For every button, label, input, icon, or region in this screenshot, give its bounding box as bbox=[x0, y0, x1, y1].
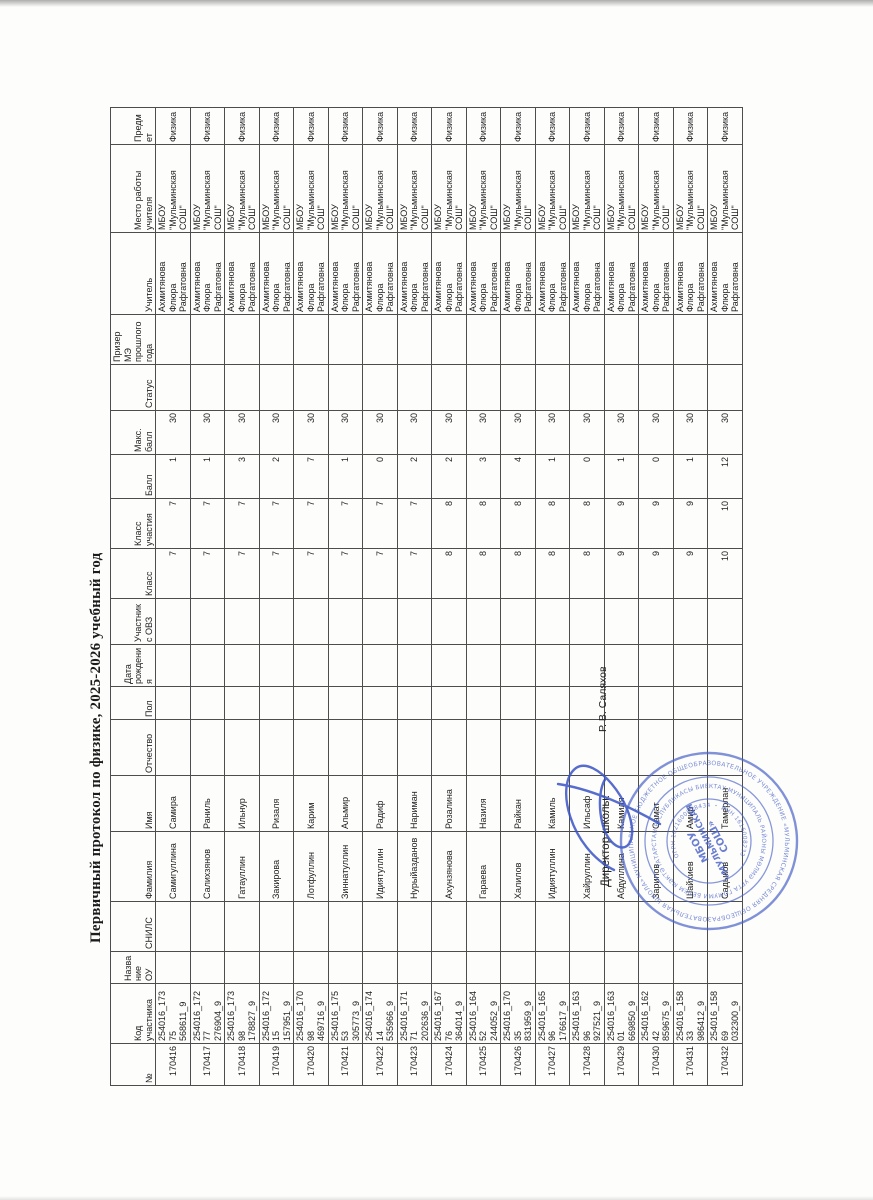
cell-birthdate bbox=[156, 645, 191, 687]
cell-teacher: Ахмитянова Флюра Рафгатовна bbox=[397, 233, 432, 315]
cell-participation-grade: 8 bbox=[432, 499, 467, 549]
cell-status bbox=[363, 365, 398, 411]
cell-teacher: Ахмитянова Флюра Рафгатовна bbox=[708, 233, 743, 315]
cell-patronymic bbox=[363, 720, 398, 776]
cell-teacher: Ахмитянова Флюра Рафгатовна bbox=[259, 233, 294, 315]
cell-teacher: Ахмитянова Флюра Рафгатовна bbox=[639, 233, 674, 315]
cell-grade: 7 bbox=[190, 549, 225, 599]
cell-school-name bbox=[363, 952, 398, 984]
cell-sex bbox=[294, 687, 329, 720]
cell-birthdate bbox=[363, 645, 398, 687]
cell-teacher: Ахмитянова Флюра Рафгатовна bbox=[225, 233, 260, 315]
cell-max-score: 30 bbox=[570, 411, 605, 455]
cell-prize-winner bbox=[673, 315, 708, 365]
cell-school-name bbox=[466, 952, 501, 984]
cell-grade: 9 bbox=[673, 549, 708, 599]
cell-sex bbox=[397, 687, 432, 720]
cell-snils bbox=[501, 902, 536, 952]
cell-birthdate bbox=[639, 645, 674, 687]
cell-sex bbox=[225, 687, 260, 720]
cell-teacher-workplace: МБОУ "Мульминская СОШ" bbox=[501, 145, 536, 233]
cell-teacher-workplace: МБОУ "Мульминская СОШ" bbox=[708, 145, 743, 233]
cell-surname: Самигуллина bbox=[156, 832, 191, 902]
cell-ovz bbox=[673, 599, 708, 645]
cell-max-score: 30 bbox=[328, 411, 363, 455]
cell-prize-winner bbox=[466, 315, 501, 365]
cell-grade: 8 bbox=[501, 549, 536, 599]
header-score: Балл bbox=[111, 455, 156, 499]
cell-birthdate bbox=[708, 645, 743, 687]
header-teacher: Учитель bbox=[111, 233, 156, 315]
cell-snils bbox=[190, 902, 225, 952]
cell-snils bbox=[432, 902, 467, 952]
cell-ovz bbox=[397, 599, 432, 645]
cell-patronymic bbox=[190, 720, 225, 776]
cell-num: 170423 bbox=[397, 1044, 432, 1086]
cell-participation-grade: 8 bbox=[535, 499, 570, 549]
cell-status bbox=[328, 365, 363, 411]
cell-score: 1 bbox=[328, 455, 363, 499]
header-grade: Класс bbox=[111, 549, 156, 599]
cell-status bbox=[535, 365, 570, 411]
cell-max-score: 30 bbox=[535, 411, 570, 455]
cell-max-score: 30 bbox=[259, 411, 294, 455]
cell-school-name bbox=[708, 952, 743, 984]
cell-score: 2 bbox=[259, 455, 294, 499]
cell-status bbox=[225, 365, 260, 411]
cell-score: 4 bbox=[501, 455, 536, 499]
cell-max-score: 30 bbox=[673, 411, 708, 455]
cell-name: Ильнур bbox=[225, 776, 260, 832]
cell-name: Радиф bbox=[363, 776, 398, 832]
cell-max-score: 30 bbox=[363, 411, 398, 455]
header-snils: СНИЛС bbox=[111, 902, 156, 952]
cell-subject: Физика bbox=[294, 108, 329, 145]
table-header-row: №Код участникаНазвание ОУСНИЛСФамилияИмя… bbox=[111, 108, 156, 1086]
table-row: 170426254016_17035 831959_9ХалиловРайкан… bbox=[501, 108, 536, 1086]
cell-subject: Физика bbox=[570, 108, 605, 145]
cell-status bbox=[604, 365, 639, 411]
header-status: Статус bbox=[111, 365, 156, 411]
cell-grade: 10 bbox=[708, 549, 743, 599]
cell-teacher-workplace: МБОУ "Мульминская СОШ" bbox=[432, 145, 467, 233]
cell-participation-grade: 7 bbox=[328, 499, 363, 549]
cell-prize-winner bbox=[259, 315, 294, 365]
cell-teacher-workplace: МБОУ "Мульминская СОШ" bbox=[328, 145, 363, 233]
cell-score: 2 bbox=[397, 455, 432, 499]
cell-subject: Физика bbox=[328, 108, 363, 145]
table-row: 170428254016_16396 927521_9ХайруллинИльс… bbox=[570, 108, 605, 1086]
table-row: 170425254016_16452 244052_9ГараеваНазиля… bbox=[466, 108, 501, 1086]
cell-ovz bbox=[466, 599, 501, 645]
cell-score: 0 bbox=[639, 455, 674, 499]
table-row: 170423254016_17171 202636_9НурыйаздановН… bbox=[397, 108, 432, 1086]
cell-teacher-workplace: МБОУ "Мульминская СОШ" bbox=[673, 145, 708, 233]
cell-num: 170421 bbox=[328, 1044, 363, 1086]
cell-snils bbox=[570, 902, 605, 952]
table-row: 170429254016_16301 669850_9АбдуллинаКами… bbox=[604, 108, 639, 1086]
cell-status bbox=[673, 365, 708, 411]
cell-participation-grade: 8 bbox=[501, 499, 536, 549]
cell-max-score: 30 bbox=[604, 411, 639, 455]
cell-prize-winner bbox=[604, 315, 639, 365]
cell-num: 170428 bbox=[570, 1044, 605, 1086]
cell-code: 254016_17098 469716_9 bbox=[294, 984, 329, 1044]
cell-ovz bbox=[432, 599, 467, 645]
cell-num: 170426 bbox=[501, 1044, 536, 1086]
cell-num: 170424 bbox=[432, 1044, 467, 1086]
cell-prize-winner bbox=[708, 315, 743, 365]
cell-snils bbox=[294, 902, 329, 952]
cell-status bbox=[708, 365, 743, 411]
cell-max-score: 30 bbox=[466, 411, 501, 455]
cell-snils bbox=[156, 902, 191, 952]
cell-birthdate bbox=[294, 645, 329, 687]
cell-grade: 7 bbox=[156, 549, 191, 599]
cell-subject: Физика bbox=[535, 108, 570, 145]
cell-participation-grade: 10 bbox=[708, 499, 743, 549]
cell-score: 3 bbox=[466, 455, 501, 499]
cell-sex bbox=[673, 687, 708, 720]
cell-teacher-workplace: МБОУ "Мульминская СОШ" bbox=[190, 145, 225, 233]
cell-ovz bbox=[225, 599, 260, 645]
cell-patronymic bbox=[432, 720, 467, 776]
cell-teacher: Ахмитянова Флюра Рафгатовна bbox=[570, 233, 605, 315]
header-max-score: Макс. балл bbox=[111, 411, 156, 455]
cell-grade: 9 bbox=[639, 549, 674, 599]
cell-grade: 7 bbox=[363, 549, 398, 599]
cell-score: 2 bbox=[432, 455, 467, 499]
cell-snils bbox=[397, 902, 432, 952]
cell-sex bbox=[535, 687, 570, 720]
cell-surname: Ахунзянова bbox=[432, 832, 467, 902]
cell-prize-winner bbox=[328, 315, 363, 365]
cell-patronymic bbox=[294, 720, 329, 776]
cell-teacher-workplace: МБОУ "Мульминская СОШ" bbox=[397, 145, 432, 233]
cell-teacher-workplace: МБОУ "Мульминская СОШ" bbox=[294, 145, 329, 233]
cell-school-name bbox=[432, 952, 467, 984]
page-title: Первичный протокол по физике, 2025-2026 … bbox=[88, 553, 105, 943]
cell-participation-grade: 9 bbox=[673, 499, 708, 549]
cell-max-score: 30 bbox=[225, 411, 260, 455]
header-school-name: Название ОУ bbox=[111, 952, 156, 984]
cell-subject: Физика bbox=[466, 108, 501, 145]
cell-code: 254016_17375 568611_9 bbox=[156, 984, 191, 1044]
cell-snils bbox=[259, 902, 294, 952]
cell-code: 254016_16596 176617_9 bbox=[535, 984, 570, 1044]
cell-ovz bbox=[639, 599, 674, 645]
cell-score: 1 bbox=[156, 455, 191, 499]
cell-patronymic bbox=[466, 720, 501, 776]
cell-sex bbox=[501, 687, 536, 720]
cell-status bbox=[259, 365, 294, 411]
cell-subject: Физика bbox=[432, 108, 467, 145]
cell-surname: Нурыйазданов bbox=[397, 832, 432, 902]
cell-prize-winner bbox=[294, 315, 329, 365]
cell-status bbox=[501, 365, 536, 411]
cell-prize-winner bbox=[156, 315, 191, 365]
cell-teacher-workplace: МБОУ "Мульминская СОШ" bbox=[604, 145, 639, 233]
cell-birthdate bbox=[673, 645, 708, 687]
table-row: 170427254016_16596 176617_9ИдиятуллинКам… bbox=[535, 108, 570, 1086]
cell-teacher-workplace: МБОУ "Мульминская СОШ" bbox=[535, 145, 570, 233]
cell-num: 170419 bbox=[259, 1044, 294, 1086]
cell-teacher-workplace: МБОУ "Мульминская СОШ" bbox=[639, 145, 674, 233]
cell-grade: 8 bbox=[432, 549, 467, 599]
cell-sex bbox=[328, 687, 363, 720]
header-participation-grade: Класс участия bbox=[111, 499, 156, 549]
cell-snils bbox=[535, 902, 570, 952]
cell-code: 254016_16452 244052_9 bbox=[466, 984, 501, 1044]
cell-snils bbox=[363, 902, 398, 952]
cell-ovz bbox=[570, 599, 605, 645]
cell-surname: Гатауллин bbox=[225, 832, 260, 902]
cell-ovz bbox=[156, 599, 191, 645]
cell-num: 170425 bbox=[466, 1044, 501, 1086]
cell-patronymic bbox=[225, 720, 260, 776]
table-row: 170432254016_15869 032300_9СадыковТамерл… bbox=[708, 108, 743, 1086]
cell-code: 254016_17414 535966_9 bbox=[363, 984, 398, 1044]
cell-num: 170416 bbox=[156, 1044, 191, 1086]
cell-score: 3 bbox=[225, 455, 260, 499]
cell-school-name bbox=[501, 952, 536, 984]
cell-grade: 8 bbox=[570, 549, 605, 599]
cell-surname: Лотфуллин bbox=[294, 832, 329, 902]
cell-birthdate bbox=[328, 645, 363, 687]
cell-code: 254016_17553 305773_9 bbox=[328, 984, 363, 1044]
cell-surname: Зиннатуллин bbox=[328, 832, 363, 902]
cell-birthdate bbox=[259, 645, 294, 687]
cell-snils bbox=[225, 902, 260, 952]
cell-teacher-workplace: МБОУ "Мульминская СОШ" bbox=[570, 145, 605, 233]
cell-subject: Физика bbox=[397, 108, 432, 145]
cell-teacher: Ахмитянова Флюра Рафгатовна bbox=[604, 233, 639, 315]
cell-code: 254016_17215 157951_9 bbox=[259, 984, 294, 1044]
cell-prize-winner bbox=[363, 315, 398, 365]
table-row: 170424254016_16776 364014_9АхунзяноваРоз… bbox=[432, 108, 467, 1086]
cell-code: 254016_15869 032300_9 bbox=[708, 984, 743, 1044]
cell-prize-winner bbox=[432, 315, 467, 365]
header-surname: Фамилия bbox=[111, 832, 156, 902]
cell-name: Райкан bbox=[501, 776, 536, 832]
cell-teacher: Ахмитянова Флюра Рафгатовна bbox=[363, 233, 398, 315]
cell-subject: Физика bbox=[604, 108, 639, 145]
cell-score: 0 bbox=[363, 455, 398, 499]
cell-teacher: Ахмитянова Флюра Рафгатовна bbox=[535, 233, 570, 315]
cell-sex bbox=[604, 687, 639, 720]
cell-ovz bbox=[501, 599, 536, 645]
header-patronymic: Отчество bbox=[111, 720, 156, 776]
cell-status bbox=[397, 365, 432, 411]
cell-code: 254016_17035 831959_9 bbox=[501, 984, 536, 1044]
cell-surname: Закирова bbox=[259, 832, 294, 902]
cell-teacher: Ахмитянова Флюра Рафгатовна bbox=[190, 233, 225, 315]
cell-patronymic bbox=[501, 720, 536, 776]
cell-name: Нариман bbox=[397, 776, 432, 832]
cell-school-name bbox=[397, 952, 432, 984]
cell-participation-grade: 7 bbox=[294, 499, 329, 549]
table-row: 170422254016_17414 535966_9ИдиятуллинРад… bbox=[363, 108, 398, 1086]
table-row: 170418254016_17398 178827_9ГатауллинИльн… bbox=[225, 108, 260, 1086]
cell-birthdate bbox=[535, 645, 570, 687]
cell-participation-grade: 7 bbox=[190, 499, 225, 549]
cell-num: 170427 bbox=[535, 1044, 570, 1086]
cell-num: 170432 bbox=[708, 1044, 743, 1086]
cell-status bbox=[156, 365, 191, 411]
cell-subject: Физика bbox=[259, 108, 294, 145]
cell-participation-grade: 7 bbox=[397, 499, 432, 549]
cell-surname: Халилов bbox=[501, 832, 536, 902]
cell-num: 170429 bbox=[604, 1044, 639, 1086]
cell-school-name bbox=[639, 952, 674, 984]
cell-grade: 7 bbox=[328, 549, 363, 599]
header-birthdate: Дата рождения bbox=[111, 645, 156, 687]
cell-teacher-workplace: МБОУ "Мульминская СОШ" bbox=[466, 145, 501, 233]
cell-code: 254016_17171 202636_9 bbox=[397, 984, 432, 1044]
cell-num: 170430 bbox=[639, 1044, 674, 1086]
cell-subject: Физика bbox=[708, 108, 743, 145]
cell-name: Назиля bbox=[466, 776, 501, 832]
cell-participation-grade: 8 bbox=[570, 499, 605, 549]
cell-patronymic bbox=[259, 720, 294, 776]
cell-school-name bbox=[673, 952, 708, 984]
cell-sex bbox=[432, 687, 467, 720]
cell-teacher-workplace: МБОУ "Мульминская СОШ" bbox=[363, 145, 398, 233]
cell-code: 254016_17398 178827_9 bbox=[225, 984, 260, 1044]
cell-school-name bbox=[156, 952, 191, 984]
cell-participation-grade: 9 bbox=[639, 499, 674, 549]
cell-sex bbox=[708, 687, 743, 720]
cell-num: 170431 bbox=[673, 1044, 708, 1086]
cell-prize-winner bbox=[397, 315, 432, 365]
cell-school-name bbox=[259, 952, 294, 984]
cell-num: 170418 bbox=[225, 1044, 260, 1086]
cell-prize-winner bbox=[190, 315, 225, 365]
cell-max-score: 30 bbox=[294, 411, 329, 455]
cell-sex bbox=[639, 687, 674, 720]
cell-grade: 7 bbox=[294, 549, 329, 599]
cell-max-score: 30 bbox=[708, 411, 743, 455]
cell-participation-grade: 7 bbox=[259, 499, 294, 549]
cell-teacher: Ахмитянова Флюра Рафгатовна bbox=[328, 233, 363, 315]
cell-school-name bbox=[294, 952, 329, 984]
cell-sex bbox=[363, 687, 398, 720]
cell-subject: Физика bbox=[501, 108, 536, 145]
table-row: 170419254016_17215 157951_9ЗакироваРизал… bbox=[259, 108, 294, 1086]
cell-status bbox=[466, 365, 501, 411]
cell-prize-winner bbox=[570, 315, 605, 365]
cell-score: 7 bbox=[294, 455, 329, 499]
cell-code: 254016_16396 927521_9 bbox=[570, 984, 605, 1044]
cell-sex bbox=[156, 687, 191, 720]
cell-ovz bbox=[328, 599, 363, 645]
cell-participation-grade: 7 bbox=[225, 499, 260, 549]
cell-teacher: Ахмитянова Флюра Рафгатовна bbox=[673, 233, 708, 315]
header-code: Код участника bbox=[111, 984, 156, 1044]
cell-num: 170422 bbox=[363, 1044, 398, 1086]
cell-birthdate bbox=[501, 645, 536, 687]
cell-surname: Идиятуллин bbox=[363, 832, 398, 902]
cell-max-score: 30 bbox=[501, 411, 536, 455]
table-row: 170420254016_17098 469716_9ЛотфуллинКари… bbox=[294, 108, 329, 1086]
cell-teacher: Ахмитянова Флюра Рафгатовна bbox=[294, 233, 329, 315]
cell-subject: Физика bbox=[639, 108, 674, 145]
cell-ovz bbox=[535, 599, 570, 645]
protocol-table: №Код участникаНазвание ОУСНИЛСФамилияИмя… bbox=[110, 107, 743, 1086]
cell-name: Розалина bbox=[432, 776, 467, 832]
cell-score: 0 bbox=[570, 455, 605, 499]
cell-max-score: 30 bbox=[190, 411, 225, 455]
cell-birthdate bbox=[190, 645, 225, 687]
header-teacher-workplace: Место работы учителя bbox=[111, 145, 156, 233]
cell-subject: Физика bbox=[225, 108, 260, 145]
cell-participation-grade: 9 bbox=[604, 499, 639, 549]
cell-code: 254016_15833 986412_9 bbox=[673, 984, 708, 1044]
cell-num: 170417 bbox=[190, 1044, 225, 1086]
cell-prize-winner bbox=[535, 315, 570, 365]
cell-ovz bbox=[604, 599, 639, 645]
cell-sex bbox=[466, 687, 501, 720]
cell-max-score: 30 bbox=[397, 411, 432, 455]
cell-status bbox=[294, 365, 329, 411]
cell-name: Раниль bbox=[190, 776, 225, 832]
cell-subject: Физика bbox=[156, 108, 191, 145]
cell-patronymic bbox=[328, 720, 363, 776]
cell-teacher-workplace: МБОУ "Мульминская СОШ" bbox=[225, 145, 260, 233]
cell-teacher: Ахмитянова Флюра Рафгатовна bbox=[501, 233, 536, 315]
cell-grade: 9 bbox=[604, 549, 639, 599]
school-round-stamp: МУНИЦИПАЛЬНОЕ БЮДЖЕТНОЕ ОБЩЕОБРАЗОВАТЕЛЬ… bbox=[614, 746, 804, 936]
header-name: Имя bbox=[111, 776, 156, 832]
cell-surname: Салихзянов bbox=[190, 832, 225, 902]
cell-sex bbox=[259, 687, 294, 720]
cell-ovz bbox=[259, 599, 294, 645]
cell-participation-grade: 7 bbox=[156, 499, 191, 549]
cell-prize-winner bbox=[501, 315, 536, 365]
cell-max-score: 30 bbox=[156, 411, 191, 455]
cell-grade: 7 bbox=[225, 549, 260, 599]
cell-ovz bbox=[363, 599, 398, 645]
cell-score: 1 bbox=[190, 455, 225, 499]
cell-teacher: Ахмитянова Флюра Рафгатовна bbox=[466, 233, 501, 315]
table-body: 170416254016_17375 568611_9СамигуллинаСа… bbox=[156, 108, 743, 1086]
cell-prize-winner bbox=[639, 315, 674, 365]
cell-subject: Физика bbox=[190, 108, 225, 145]
header-subject: Предмет bbox=[111, 108, 156, 145]
cell-snils bbox=[328, 902, 363, 952]
table-row: 170431254016_15833 986412_9ШайхиевАмир99… bbox=[673, 108, 708, 1086]
cell-code: 254016_16776 364014_9 bbox=[432, 984, 467, 1044]
cell-ovz bbox=[708, 599, 743, 645]
header-prize-winner: Призер МЭ прошлого года bbox=[111, 315, 156, 365]
cell-code: 254016_17277 276904_9 bbox=[190, 984, 225, 1044]
cell-participation-grade: 7 bbox=[363, 499, 398, 549]
cell-score: 1 bbox=[673, 455, 708, 499]
scanned-page: Первичный протокол по физике, 2025-2026 … bbox=[0, 0, 873, 1200]
cell-prize-winner bbox=[225, 315, 260, 365]
cell-name: Альмир bbox=[328, 776, 363, 832]
cell-code: 254016_16242 859675_9 bbox=[639, 984, 674, 1044]
cell-school-name bbox=[604, 952, 639, 984]
cell-birthdate bbox=[604, 645, 639, 687]
header-sex: Пол bbox=[111, 687, 156, 720]
header-num: № bbox=[111, 1044, 156, 1086]
table-row: 170417254016_17277 276904_9СалихзяновРан… bbox=[190, 108, 225, 1086]
cell-school-name bbox=[570, 952, 605, 984]
rotated-document: Первичный протокол по физике, 2025-2026 … bbox=[0, 0, 873, 1200]
cell-snils bbox=[466, 902, 501, 952]
cell-school-name bbox=[535, 952, 570, 984]
